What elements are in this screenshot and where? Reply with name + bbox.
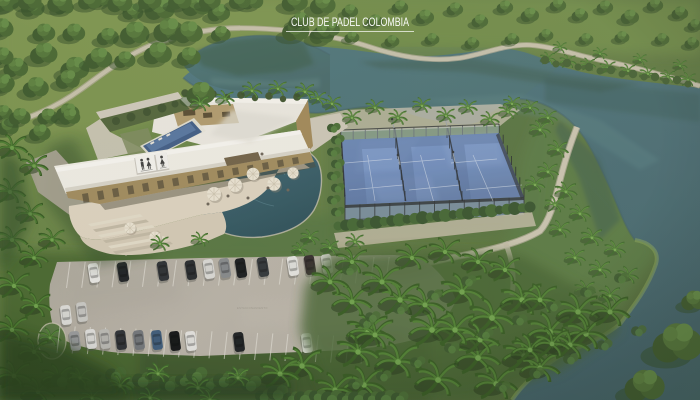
- svg-text:CLUB DE PADEL COLOMBIA: CLUB DE PADEL COLOMBIA: [291, 17, 409, 29]
